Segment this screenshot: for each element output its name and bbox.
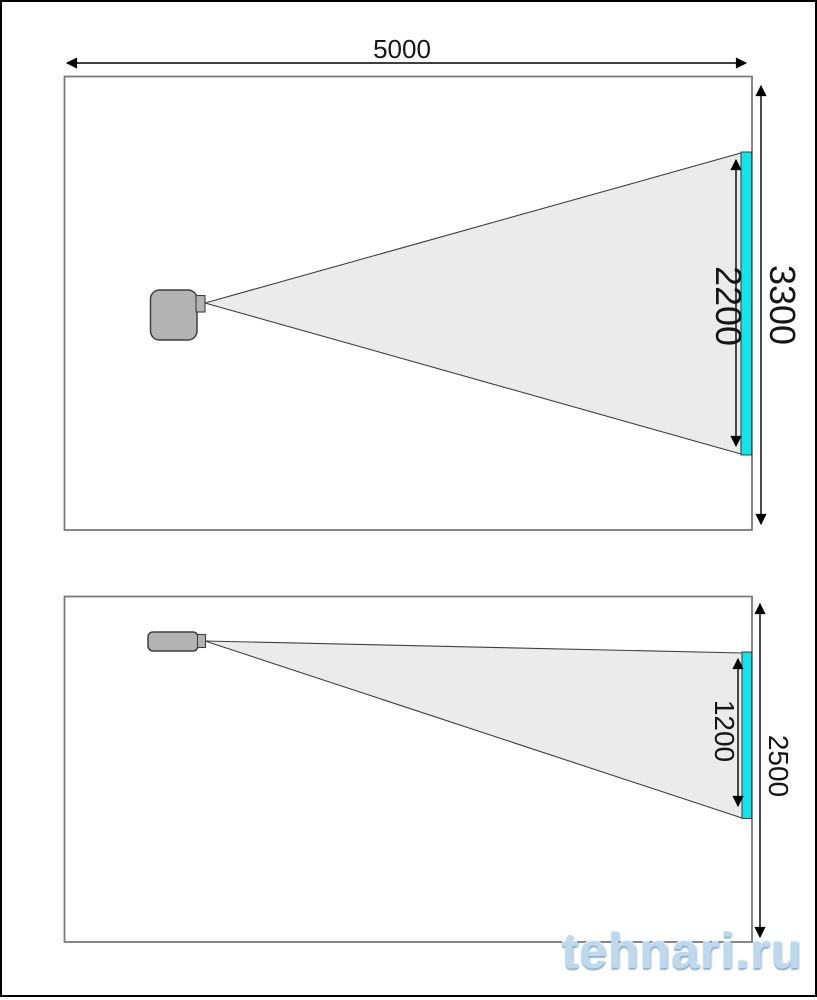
room-width-dimension-label: 3300 [762,225,802,385]
screen-side-view [742,652,752,819]
top-view-diagram [65,63,762,530]
diagram-drawing [0,0,817,1000]
room-height-dimension-label: 2500 [762,686,794,846]
projector-setup-diagram: 5000 3300 2200 2500 1200 tehnari.ru [0,0,817,1000]
tehnari-watermark: tehnari.ru [561,922,802,980]
projector-lens-top-view [196,296,205,313]
image-width-dimension-label: 2200 [708,226,748,386]
side-view-diagram [65,597,761,943]
image-height-dimension-label: 1200 [708,651,740,811]
projector-lens-side-view [198,635,206,648]
projector-body-top-view [151,290,198,340]
projector-body-side-view [148,632,198,651]
room-length-dimension-label: 5000 [342,34,462,64]
